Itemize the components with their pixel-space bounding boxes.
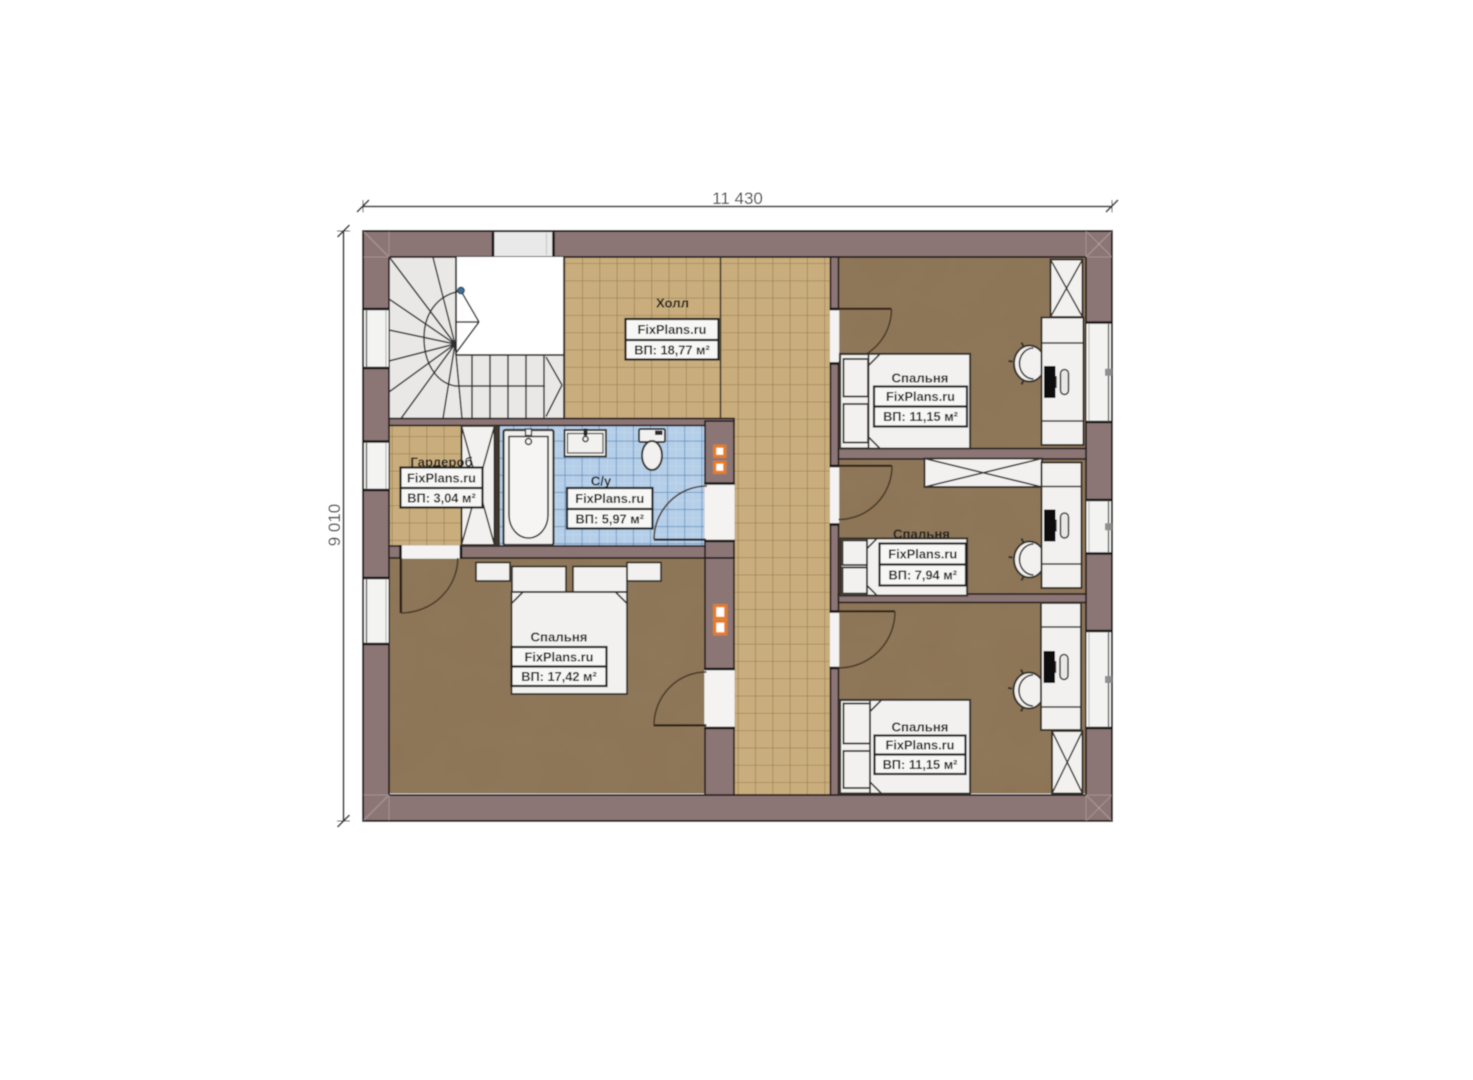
- svg-text:FixPlans.ru: FixPlans.ru: [886, 389, 955, 404]
- svg-text:FixPlans.ru: FixPlans.ru: [888, 547, 957, 562]
- svg-text:С/у: С/у: [591, 474, 612, 489]
- svg-text:9 010: 9 010: [325, 504, 344, 547]
- svg-text:ВП: 11,15 м²: ВП: 11,15 м²: [883, 757, 958, 772]
- svg-text:ВП: 11,15 м²: ВП: 11,15 м²: [883, 409, 958, 424]
- svg-text:FixPlans.ru: FixPlans.ru: [575, 491, 644, 506]
- svg-text:Спальня: Спальня: [531, 630, 588, 645]
- svg-text:ВП: 5,97 м²: ВП: 5,97 м²: [576, 511, 644, 526]
- svg-text:FixPlans.ru: FixPlans.ru: [886, 738, 955, 753]
- svg-text:FixPlans.ru: FixPlans.ru: [638, 322, 707, 337]
- svg-text:FixPlans.ru: FixPlans.ru: [525, 649, 594, 664]
- svg-text:FixPlans.ru: FixPlans.ru: [407, 470, 476, 485]
- svg-text:Холл: Холл: [656, 296, 689, 311]
- svg-text:ВП: 17,42 м²: ВП: 17,42 м²: [521, 669, 597, 684]
- svg-text:ВП: 18,77 м²: ВП: 18,77 м²: [634, 342, 710, 357]
- svg-text:Спальня: Спальня: [892, 720, 949, 735]
- svg-text:ВП: 3,04 м²: ВП: 3,04 м²: [407, 490, 475, 505]
- svg-text:Спальня: Спальня: [893, 527, 950, 542]
- svg-text:11 430: 11 430: [712, 189, 763, 208]
- svg-text:ВП: 7,94 м²: ВП: 7,94 м²: [889, 568, 957, 583]
- svg-text:Спальня: Спальня: [892, 371, 949, 386]
